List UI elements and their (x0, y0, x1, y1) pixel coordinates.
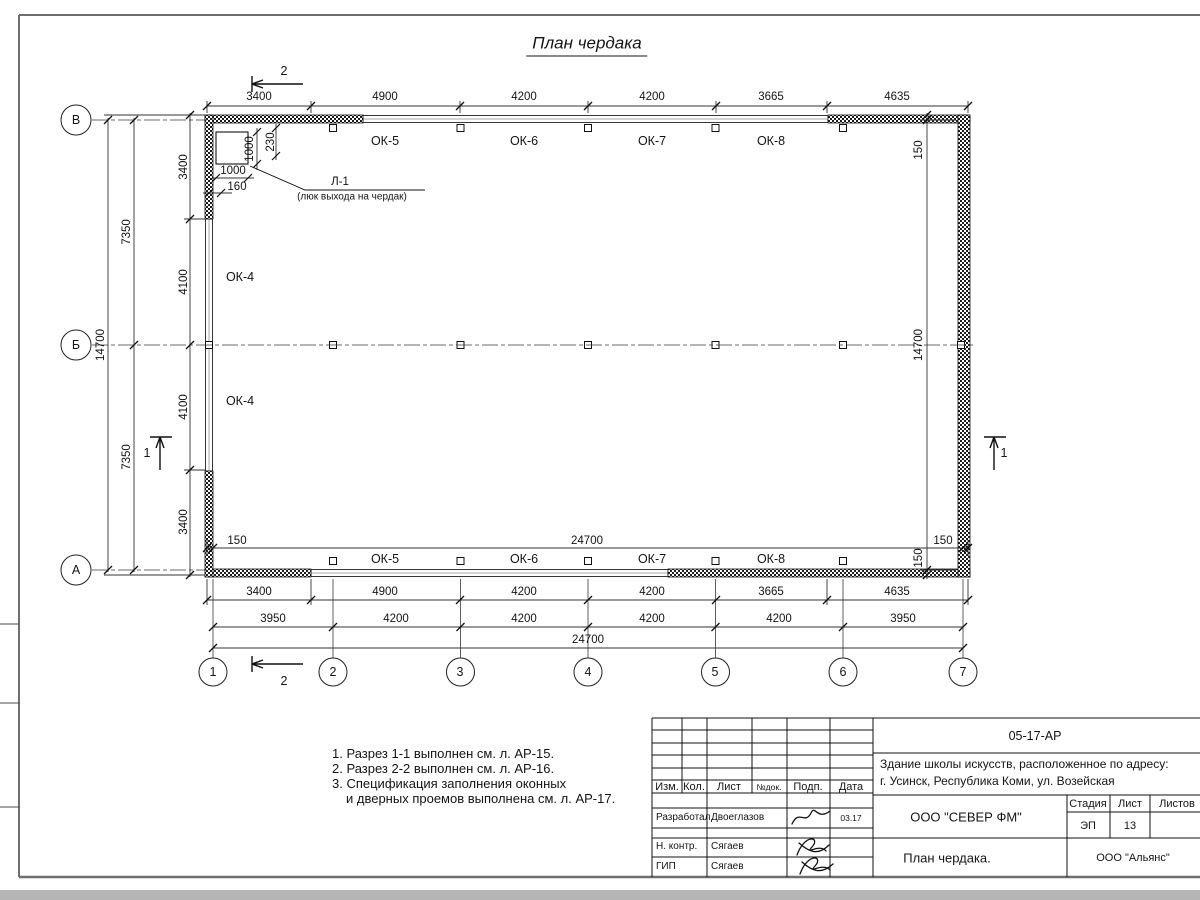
section-label: 2 (281, 674, 288, 688)
section-label: 1 (1001, 446, 1008, 460)
stamp-company: ООО "СЕВЕР ФМ" (910, 810, 1022, 825)
stamp-contractor: ООО "Альянс" (1096, 852, 1170, 864)
window-label: ОК-8 (757, 134, 785, 148)
axis-bubble-label: 1 (210, 665, 217, 679)
stamp-sheet-value: 13 (1124, 820, 1136, 832)
stamp-role: Н. контр. (656, 841, 697, 852)
scan-edge (0, 890, 1200, 900)
window-label: ОК-5 (371, 134, 399, 148)
stamp-col-ndok: №док. (757, 782, 782, 792)
dim-label: 3665 (758, 586, 784, 598)
stamp-stage-value: ЭП (1080, 820, 1096, 832)
stamp-role: ГИП (656, 861, 676, 872)
axis-bubbles (61, 105, 977, 686)
stamp-project-line2: г. Усинск, Республика Коми, ул. Возейска… (880, 774, 1115, 788)
axis-bubble-label: 2 (330, 665, 337, 679)
note-line: 1. Разрез 1-1 выполнен см. л. АР-15. (332, 746, 554, 761)
dim-label: 4900 (372, 91, 398, 103)
axis-bubble-label: 6 (840, 665, 847, 679)
window-label: ОК-5 (371, 552, 399, 566)
axis-bubble-label: 7 (960, 665, 967, 679)
dim-label: 3400 (178, 154, 190, 180)
section-label: 1 (144, 446, 151, 460)
dim-label: 3400 (178, 509, 190, 535)
hatch-door-label: Л-1 (331, 176, 349, 188)
dim-label: 4200 (639, 586, 665, 598)
section-marks (150, 76, 1006, 672)
dim-label: 24700 (572, 634, 604, 646)
window-label: ОК-6 (510, 134, 538, 148)
window-walls (206, 116, 829, 577)
axis-bubble-label: 4 (585, 665, 592, 679)
dim-label: 3665 (758, 91, 784, 103)
dim-label: 14700 (913, 329, 925, 361)
window-label: ОК-4 (226, 270, 254, 284)
dim-label: 4200 (639, 613, 665, 625)
stamp-sheet-label: Лист (1118, 798, 1142, 810)
dim-label: 4200 (511, 91, 537, 103)
stamp-stage-label: Стадия (1069, 798, 1107, 810)
note-line: 2. Разрез 2-2 выполнен см. л. АР-16. (332, 761, 554, 776)
dim-label: 1000 (244, 136, 256, 162)
axis-bubble-label: В (72, 113, 80, 127)
stamp-role: Разработал (656, 812, 710, 823)
dim-label: 1000 (220, 165, 246, 177)
sheet-frame (19, 15, 1200, 877)
dim-label: 4200 (383, 613, 409, 625)
stamp-doc-number: 05-17-АР (1009, 729, 1062, 743)
dim-label: 230 (265, 132, 277, 151)
window-label: ОК-6 (510, 552, 538, 566)
axis-bubble-label: 3 (457, 665, 464, 679)
window-label: ОК-4 (226, 394, 254, 408)
stamp-col-kol: Кол. (683, 781, 705, 793)
stamp-project-line1: Здание школы искусств, расположенное по … (880, 757, 1169, 771)
dim-label: 150 (913, 548, 925, 567)
margin-ticks (0, 624, 19, 807)
stamp-drawing-title: План чердака. (903, 851, 991, 866)
section-label: 2 (281, 64, 288, 78)
stamp-sheets-label: Листов (1159, 798, 1195, 810)
stamp-name: Сягаев (711, 841, 744, 852)
dim-label: 4635 (884, 586, 910, 598)
dim-label: 7350 (121, 219, 133, 245)
stamp-name: Двоеглазов (711, 812, 764, 823)
dim-label: 4200 (639, 91, 665, 103)
dim-label: 14700 (95, 329, 107, 361)
dim-label: 4100 (178, 394, 190, 420)
drawing-sheet: План чердака 3400 4900 4200 4200 3665 46… (0, 0, 1200, 900)
page-title: План чердака (526, 34, 647, 57)
dim-label: 4200 (511, 586, 537, 598)
dim-label: 150 (227, 535, 246, 547)
axis-bubble-label: Б (72, 338, 80, 352)
window-label: ОК-7 (638, 552, 666, 566)
stamp-date: 03.17 (840, 813, 861, 823)
dim-label: 24700 (571, 535, 603, 547)
dim-label: 4200 (766, 613, 792, 625)
stamp-col-izm: Изм. (655, 781, 679, 793)
dim-label: 7350 (121, 444, 133, 470)
note-line: 3. Спецификация заполнения оконных (332, 776, 566, 791)
dim-label: 4900 (372, 586, 398, 598)
dim-label: 3950 (890, 613, 916, 625)
stamp-col-list: Лист (717, 781, 741, 793)
signatures (792, 810, 833, 874)
dim-label: 4635 (884, 91, 910, 103)
stamp-col-data: Дата (839, 781, 863, 793)
columns (206, 125, 965, 565)
note-line: и дверных проемов выполнена см. л. АР-17… (346, 791, 615, 806)
axis-bubble-label: 5 (712, 665, 719, 679)
dim-label: 150 (913, 140, 925, 159)
axis-bubble-label: А (72, 563, 80, 577)
stamp-name: Сягаев (711, 861, 744, 872)
dim-label: 150 (933, 535, 952, 547)
dim-label: 4100 (178, 269, 190, 295)
window-label: ОК-7 (638, 134, 666, 148)
stamp-col-podp: Подп. (793, 781, 822, 793)
dim-label: 3950 (260, 613, 286, 625)
hatch-door-note: (люк выхода на чердак) (297, 192, 407, 203)
dim-label: 4200 (511, 613, 537, 625)
dim-label: 3400 (246, 91, 272, 103)
dim-label: 160 (227, 181, 246, 193)
window-label: ОК-8 (757, 552, 785, 566)
dim-label: 3400 (246, 586, 272, 598)
